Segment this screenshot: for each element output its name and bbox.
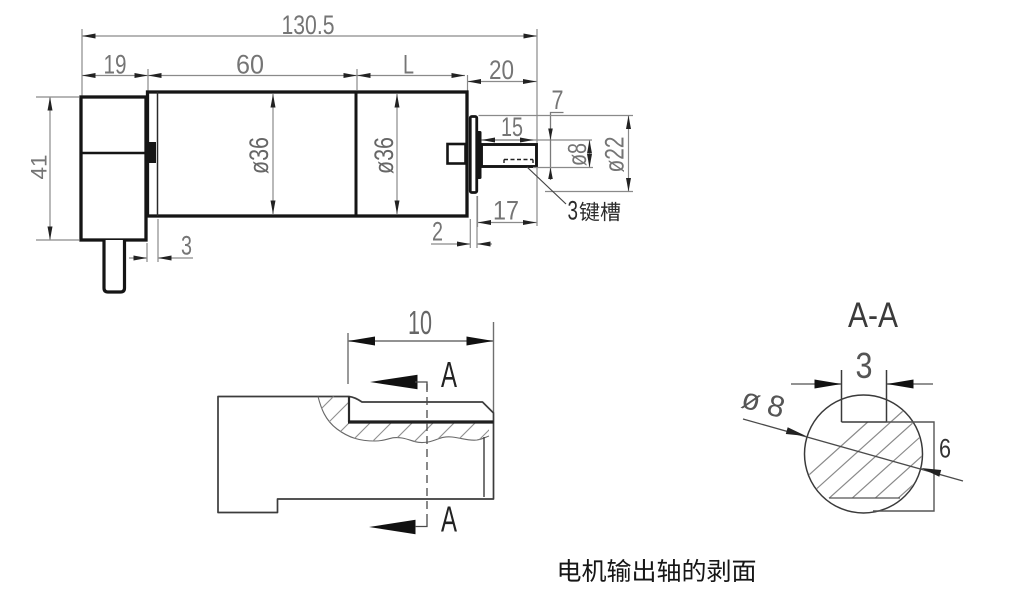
svg-text:15: 15 <box>501 112 523 142</box>
svg-text:3: 3 <box>181 231 192 261</box>
svg-text:ø8: ø8 <box>562 143 592 166</box>
svg-text:3: 3 <box>856 345 873 386</box>
svg-text:20: 20 <box>489 55 514 85</box>
svg-text:ø36: ø36 <box>369 137 399 174</box>
svg-text:7: 7 <box>552 85 564 115</box>
svg-text:ø36: ø36 <box>244 137 274 174</box>
svg-text:3: 3 <box>568 196 579 226</box>
svg-text:10: 10 <box>408 304 432 341</box>
svg-text:2: 2 <box>432 217 443 247</box>
svg-text:ø22: ø22 <box>600 137 630 173</box>
svg-text:19: 19 <box>104 50 127 80</box>
svg-text:A-A: A-A <box>848 296 899 335</box>
svg-text:60: 60 <box>236 50 264 80</box>
svg-text:130.5: 130.5 <box>282 10 335 40</box>
svg-text:A: A <box>441 499 457 540</box>
svg-text:17: 17 <box>493 196 519 226</box>
svg-text:6: 6 <box>939 434 951 464</box>
svg-text:L: L <box>403 50 414 80</box>
svg-text:41: 41 <box>27 155 52 180</box>
svg-text:A: A <box>441 354 457 395</box>
